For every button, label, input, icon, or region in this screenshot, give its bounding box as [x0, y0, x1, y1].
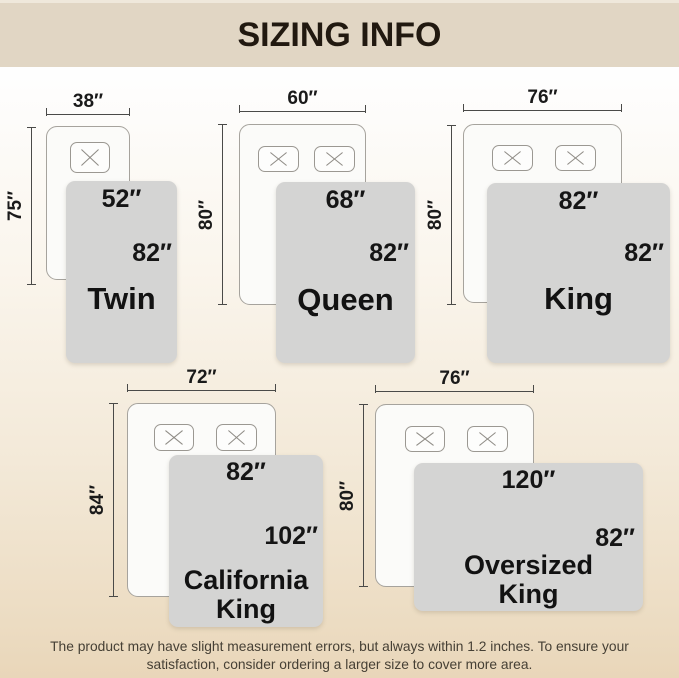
bed-length-label: 80″	[425, 185, 447, 245]
pillow-x-icon	[406, 427, 444, 451]
header-band: SIZING INFO	[0, 0, 679, 67]
length-dimension: 75″	[31, 127, 32, 285]
blanket-length-label: 82″	[624, 239, 664, 268]
bed-width-label: 60″	[239, 88, 366, 109]
length-dimension: 84″	[113, 403, 114, 597]
size-name-label: California King	[169, 566, 323, 624]
pillow	[492, 145, 533, 171]
bed-length-label: 84″	[87, 470, 109, 530]
blanket-width-label: 68″	[276, 186, 415, 215]
length-dimension: 80″	[451, 125, 452, 305]
pillow	[70, 142, 110, 173]
pillow-x-icon	[493, 146, 532, 170]
width-dimension: 76″	[463, 87, 622, 111]
size-name-label: Queen	[276, 282, 415, 318]
blanket-width-label: 52″	[66, 185, 177, 214]
blanket-width-label: 82″	[487, 187, 670, 216]
width-dimension: 60″	[239, 88, 366, 112]
width-dimension: 72″	[127, 367, 276, 391]
dimension-line	[463, 110, 622, 111]
pillow-x-icon	[71, 143, 109, 172]
pillow-x-icon	[155, 425, 193, 450]
bed-length-label: 80″	[196, 185, 218, 245]
length-dimension: 80″	[222, 124, 223, 305]
blanket: 120″ 82″ Oversized King	[414, 463, 643, 611]
blanket-width-label: 120″	[414, 466, 643, 495]
blanket-width-label: 82″	[169, 458, 323, 487]
pillow	[467, 426, 508, 452]
pillow-x-icon	[259, 147, 298, 171]
width-dimension: 38″	[46, 91, 130, 115]
blanket: 68″ 82″ Queen	[276, 182, 415, 363]
size-name-label: Twin	[66, 281, 177, 317]
bed-width-label: 72″	[127, 367, 276, 388]
pillow	[258, 146, 299, 172]
size-name-label: Oversized King	[414, 551, 643, 609]
blanket: 82″ 82″ King	[487, 183, 670, 363]
blanket-length-label: 82″	[595, 524, 635, 553]
pillow-x-icon	[217, 425, 256, 450]
disclaimer-text: The product may have slight measurement …	[0, 638, 679, 673]
bed-length-label: 80″	[337, 466, 359, 526]
pillow-x-icon	[468, 427, 507, 451]
blanket: 82″ 102″ California King	[169, 455, 323, 627]
length-dimension: 80″	[363, 404, 364, 587]
pillow	[405, 426, 445, 452]
width-dimension: 76″	[375, 368, 534, 392]
dimension-line	[375, 391, 534, 392]
pillow-x-icon	[556, 146, 595, 170]
blanket: 52″ 82″ Twin	[66, 181, 177, 363]
pillow	[314, 146, 355, 172]
figure-title: SIZING INFO	[238, 16, 442, 55]
bed-width-label: 76″	[463, 87, 622, 108]
pillow-x-icon	[315, 147, 354, 171]
pillow	[216, 424, 257, 451]
bed-width-label: 38″	[46, 91, 130, 112]
dimension-line	[127, 390, 276, 391]
bed-width-label: 76″	[375, 368, 534, 389]
dimension-line	[239, 111, 366, 112]
pillow	[555, 145, 596, 171]
blanket-length-label: 82″	[132, 239, 172, 268]
bed-length-label: 75″	[5, 176, 27, 236]
blanket-length-label: 102″	[264, 522, 318, 551]
blanket-length-label: 82″	[369, 239, 409, 268]
dimension-line	[46, 114, 130, 115]
pillow	[154, 424, 194, 451]
sizing-info-figure: SIZING INFO 38″ 75″ 52″ 82″ Twin 60″ 80″	[0, 0, 679, 678]
size-name-label: King	[487, 281, 670, 317]
